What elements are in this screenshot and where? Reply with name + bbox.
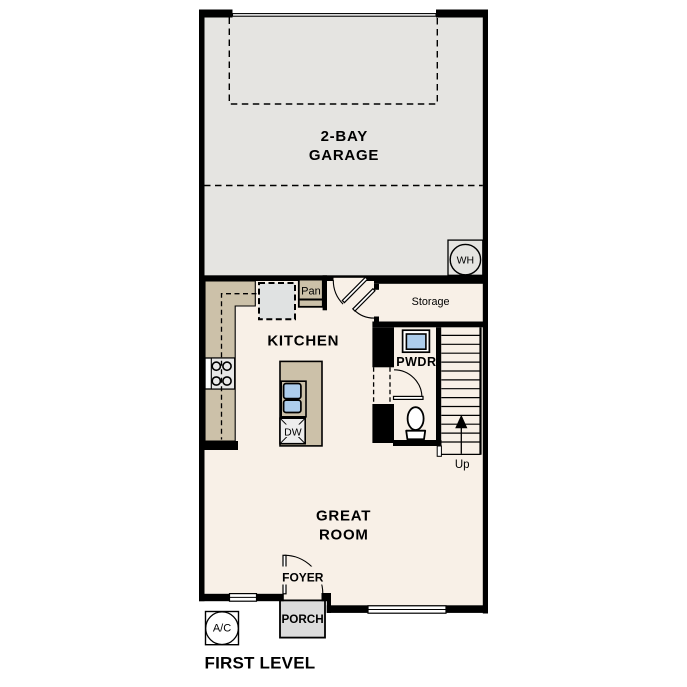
svg-text:Storage: Storage <box>412 296 450 308</box>
svg-text:ROOM: ROOM <box>319 527 369 544</box>
svg-text:GREAT: GREAT <box>316 507 371 524</box>
svg-text:DW: DW <box>284 427 302 439</box>
svg-text:PORCH: PORCH <box>281 613 323 626</box>
svg-text:2-BAY: 2-BAY <box>321 128 368 145</box>
svg-text:GARAGE: GARAGE <box>309 147 379 164</box>
svg-text:KITCHEN: KITCHEN <box>267 333 339 350</box>
svg-text:A/C: A/C <box>213 623 231 635</box>
svg-text:PWDR: PWDR <box>396 355 436 369</box>
svg-text:FIRST LEVEL: FIRST LEVEL <box>205 654 316 673</box>
svg-text:WH: WH <box>457 254 475 266</box>
svg-text:Pan: Pan <box>301 285 321 297</box>
svg-text:FOYER: FOYER <box>282 570 324 584</box>
svg-text:Up: Up <box>455 459 470 471</box>
